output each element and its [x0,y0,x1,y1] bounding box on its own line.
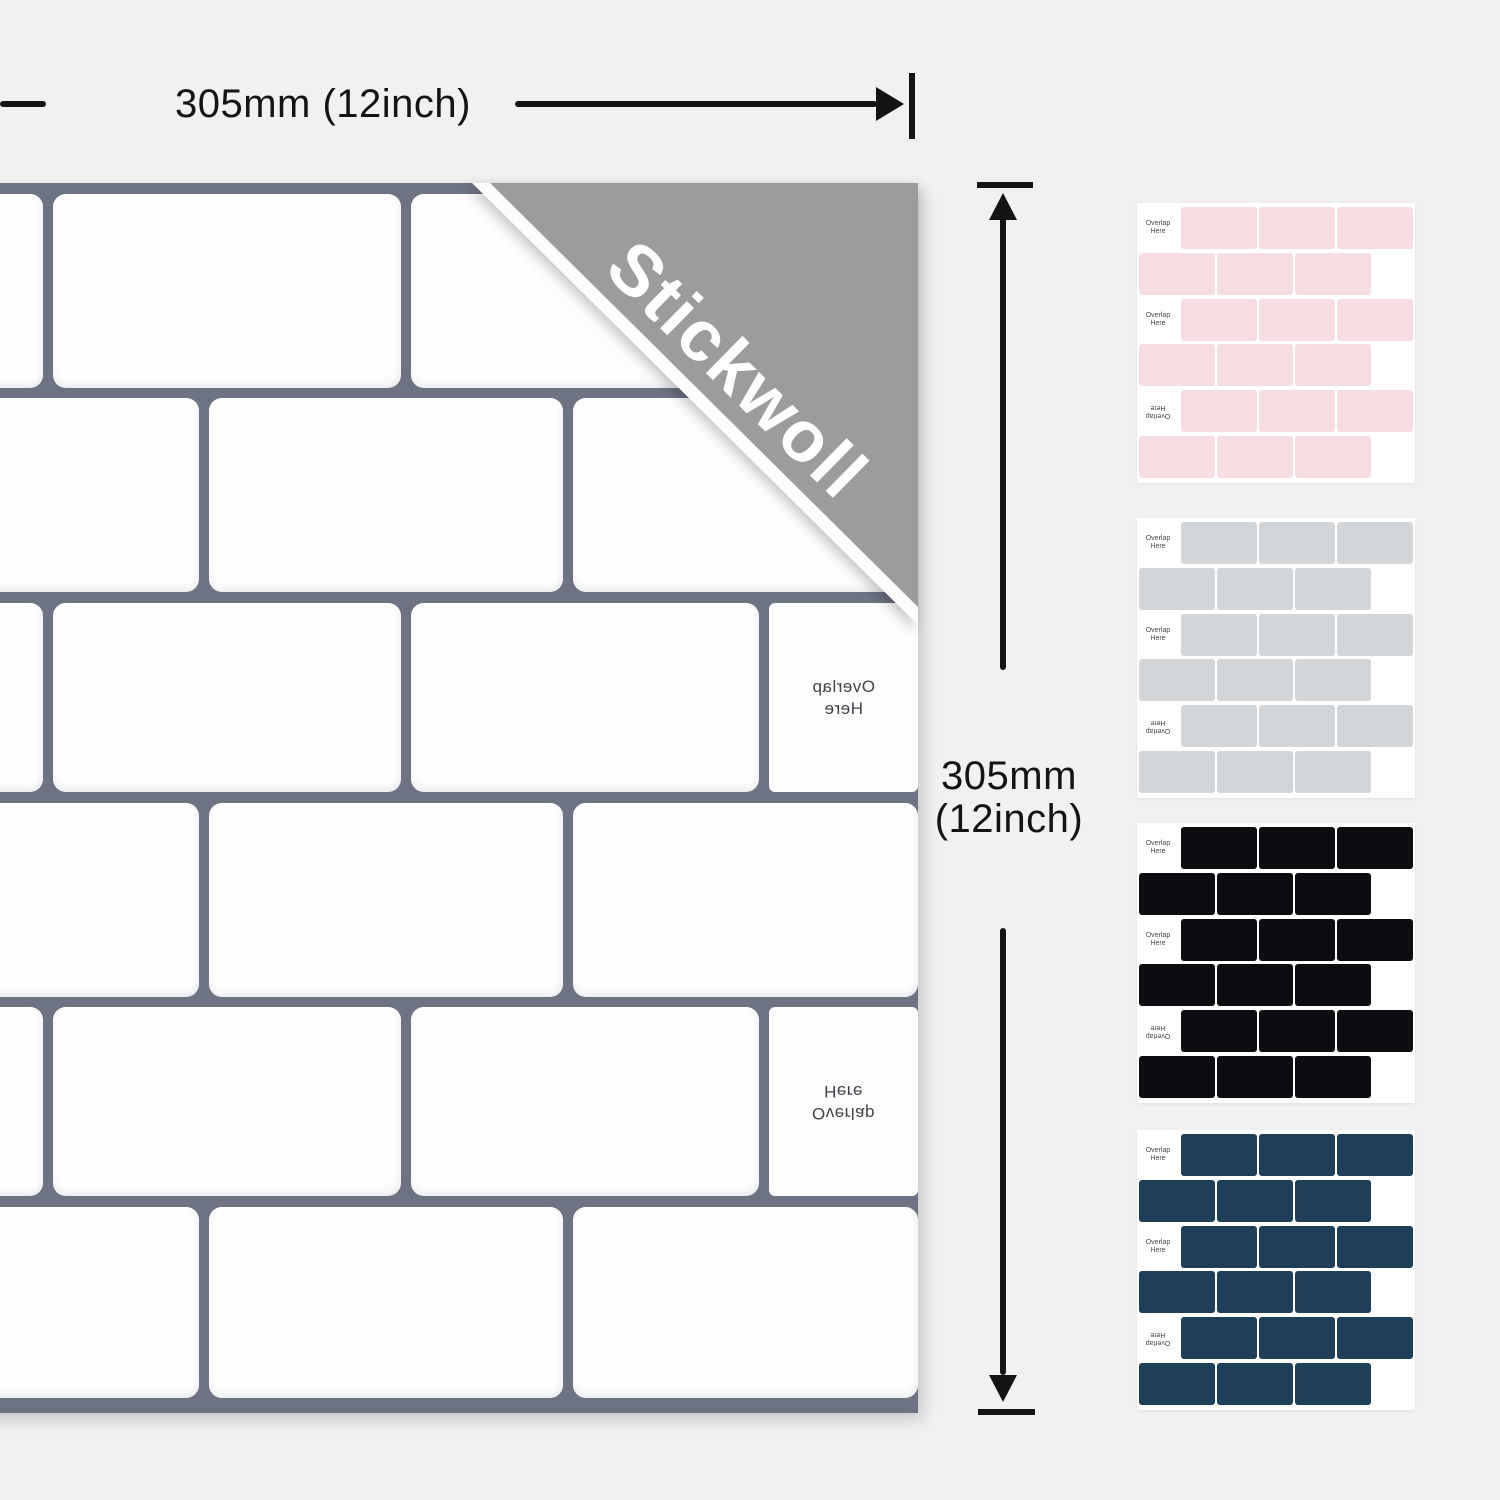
height-dimension-label: 305mm (12inch) [928,755,1090,841]
subway-tile [0,194,43,388]
swatch-label-line1: Overlap [1146,1031,1171,1039]
arrowhead-up-icon [989,193,1017,220]
swatch-sheet-pink: OverlapHereOverlapHereOverlapHere [1137,203,1415,483]
subway-tile [53,194,401,388]
swatch-overlap-label-text: OverlapHere [1146,718,1171,734]
swatch-overlap-label-text: OverlapHere [1146,932,1171,948]
swatch-tile-light-gray [1259,705,1335,747]
dimension-line-lower [1000,928,1006,1375]
swatch-tile-black [1181,827,1257,869]
swatch-label-line1: Overlap [1146,411,1171,419]
swatch-tile-pink [1295,436,1371,478]
swatch-tile-pink [1259,390,1335,432]
swatch-tile-navy [1217,1363,1293,1405]
subway-tile [53,603,401,792]
swatch-overlap-label: OverlapHere [1137,1010,1179,1052]
swatch-overlap-label-text: OverlapHere [1146,1023,1171,1039]
swatch-tile-black [1181,1010,1257,1052]
dimension-line-left [0,101,46,107]
subway-tile [0,803,199,997]
swatch-tile-navy [1181,1134,1257,1176]
swatch-tile-light-gray [1295,751,1371,793]
subway-tile [573,803,918,997]
swatch-tile-light-gray [1337,522,1413,564]
swatch-label-line1: Overlap [1146,627,1171,635]
swatch-label-line2: Here [1146,1023,1171,1031]
swatch-tile-black [1181,919,1257,961]
swatch-overlap-label: OverlapHere [1137,207,1179,249]
swatch-tile-pink [1337,299,1413,341]
swatch-tile-light-gray [1337,614,1413,656]
swatch-label-line2: Here [1146,320,1171,328]
swatch-tile-pink [1259,299,1335,341]
arrowhead-right-icon [876,87,904,121]
swatch-label-line1: Overlap [1146,535,1171,543]
swatch-label-line1: Overlap [1146,932,1171,940]
swatch-tile-light-gray [1181,614,1257,656]
swatch-tile-pink [1217,436,1293,478]
swatch-tile-light-gray [1337,705,1413,747]
swatch-tile-navy [1139,1271,1215,1313]
swatch-overlap-label: OverlapHere [1137,705,1179,747]
swatch-tile-pink [1181,299,1257,341]
swatch-tile-black [1217,964,1293,1006]
swatch-tile-navy [1295,1363,1371,1405]
swatch-label-line2: Here [1146,228,1171,236]
swatch-overlap-label-text: OverlapHere [1146,1330,1171,1346]
swatch-label-line1: Overlap [1146,312,1171,320]
swatch-tile-pink [1181,390,1257,432]
swatch-label-line1: Overlap [1146,1147,1171,1155]
swatch-tile-light-gray [1217,751,1293,793]
swatch-tile-navy [1181,1317,1257,1359]
swatch-tile-navy [1139,1180,1215,1222]
swatch-overlap-label: OverlapHere [1137,1317,1179,1359]
swatch-tile-light-gray [1181,705,1257,747]
swatch-tile-black [1259,919,1335,961]
swatch-tile-black [1217,873,1293,915]
swatch-tile-navy [1217,1271,1293,1313]
swatch-tile-navy [1217,1180,1293,1222]
swatch-overlap-label-text: OverlapHere [1146,1147,1171,1163]
swatch-tile-navy [1295,1180,1371,1222]
swatch-overlap-label: OverlapHere [1137,390,1179,432]
swatch-tile-light-gray [1295,568,1371,610]
swatch-tile-navy [1337,1317,1413,1359]
swatch-tile-black [1217,1056,1293,1098]
dimension-end-tick-top [977,182,1033,188]
swatch-tile-light-gray [1139,659,1215,701]
swatch-tile-black [1295,873,1371,915]
dimension-end-tick-right [909,73,915,139]
overlap-flap: OverlapHere [769,1007,918,1196]
swatch-overlap-label-text: OverlapHere [1146,1239,1171,1255]
swatch-tile-navy [1259,1134,1335,1176]
swatch-overlap-label-text: OverlapHere [1146,312,1171,328]
swatch-label-line2: Here [1146,635,1171,643]
swatch-tile-black [1295,964,1371,1006]
swatch-label-line1: Overlap [1146,840,1171,848]
height-dimension-unit: (12inch) [928,798,1090,841]
swatch-tile-black [1139,1056,1215,1098]
swatch-tile-black [1295,1056,1371,1098]
subway-tile [209,803,563,997]
subway-tile [0,603,43,792]
swatch-tile-navy [1259,1317,1335,1359]
swatch-tile-navy [1295,1271,1371,1313]
swatch-tile-pink [1139,344,1215,386]
product-image: OverlapHereOverlapHere Stickwoll 305mm (… [0,0,1500,1500]
subway-tile [411,603,759,792]
overlap-label-line1: Overlap [812,1102,875,1124]
swatch-tile-pink [1217,253,1293,295]
swatch-tile-light-gray [1259,522,1335,564]
swatch-sheet-navy: OverlapHereOverlapHereOverlapHere [1137,1130,1415,1410]
swatch-tile-black [1139,873,1215,915]
dimension-end-tick-bottom [978,1409,1035,1415]
swatch-label-line2: Here [1146,940,1171,948]
swatch-tile-light-gray [1217,659,1293,701]
swatch-label-line2: Here [1146,403,1171,411]
swatch-tile-pink [1337,390,1413,432]
swatch-tile-light-gray [1181,522,1257,564]
overlap-flap: OverlapHere [769,603,918,792]
swatch-tile-light-gray [1295,659,1371,701]
subway-tile [209,1207,563,1398]
swatch-tile-pink [1139,436,1215,478]
swatch-tile-pink [1295,253,1371,295]
swatch-tile-navy [1181,1226,1257,1268]
overlap-label-line1: Overlap [812,676,875,698]
swatch-overlap-label: OverlapHere [1137,1134,1179,1176]
swatch-label-line1: Overlap [1146,726,1171,734]
overlap-here-label: OverlapHere [812,1080,875,1124]
swatch-tile-pink [1217,344,1293,386]
swatch-tile-pink [1181,207,1257,249]
swatch-label-line2: Here [1146,1247,1171,1255]
swatch-tile-black [1259,1010,1335,1052]
swatch-overlap-label: OverlapHere [1137,614,1179,656]
swatch-label-line1: Overlap [1146,1338,1171,1346]
swatch-tile-pink [1337,207,1413,249]
brand-corner-fold: Stickwoll [472,183,918,625]
swatch-label-line1: Overlap [1146,1239,1171,1247]
swatch-sheet-light-gray: OverlapHereOverlapHereOverlapHere [1137,518,1415,798]
swatch-overlap-label: OverlapHere [1137,522,1179,564]
swatch-tile-light-gray [1217,568,1293,610]
subway-tile [0,1207,199,1398]
swatch-overlap-label: OverlapHere [1137,1226,1179,1268]
swatch-tile-pink [1259,207,1335,249]
swatch-label-line2: Here [1146,848,1171,856]
overlap-label-line2: Here [812,1080,875,1102]
width-dimension-label: 305mm (12inch) [162,82,484,127]
swatch-tile-black [1337,919,1413,961]
subway-tile [573,1207,918,1398]
subway-tile [0,1007,43,1196]
swatch-tile-navy [1259,1226,1335,1268]
swatch-tile-pink [1139,253,1215,295]
swatch-overlap-label-text: OverlapHere [1146,535,1171,551]
swatch-label-line2: Here [1146,543,1171,551]
swatch-label-line2: Here [1146,1155,1171,1163]
height-dimension-value: 305mm [928,755,1090,798]
dimension-line-upper [1000,218,1006,670]
dimension-line-right [515,101,877,107]
swatch-tile-navy [1139,1363,1215,1405]
subway-tile [0,398,199,592]
swatch-tile-navy [1337,1134,1413,1176]
swatch-tile-light-gray [1139,568,1215,610]
swatch-tile-black [1139,964,1215,1006]
swatch-overlap-label-text: OverlapHere [1146,627,1171,643]
subway-tile [53,1007,401,1196]
swatch-tile-light-gray [1139,751,1215,793]
overlap-label-line2: Here [812,698,875,720]
swatch-tile-light-gray [1259,614,1335,656]
swatch-sheet-black: OverlapHereOverlapHereOverlapHere [1137,823,1415,1103]
swatch-tile-navy [1337,1226,1413,1268]
swatch-overlap-label: OverlapHere [1137,827,1179,869]
swatch-label-line2: Here [1146,1330,1171,1338]
swatch-overlap-label: OverlapHere [1137,919,1179,961]
swatch-label-line1: Overlap [1146,220,1171,228]
swatch-tile-black [1259,827,1335,869]
swatch-tile-black [1337,827,1413,869]
arrowhead-down-icon [989,1375,1017,1402]
overlap-here-label: OverlapHere [812,676,875,720]
swatch-label-line2: Here [1146,718,1171,726]
swatch-overlap-label-text: OverlapHere [1146,220,1171,236]
swatch-tile-black [1337,1010,1413,1052]
swatch-tile-pink [1295,344,1371,386]
subway-tile [411,1007,759,1196]
swatch-overlap-label-text: OverlapHere [1146,403,1171,419]
swatch-overlap-label-text: OverlapHere [1146,840,1171,856]
swatch-overlap-label: OverlapHere [1137,299,1179,341]
